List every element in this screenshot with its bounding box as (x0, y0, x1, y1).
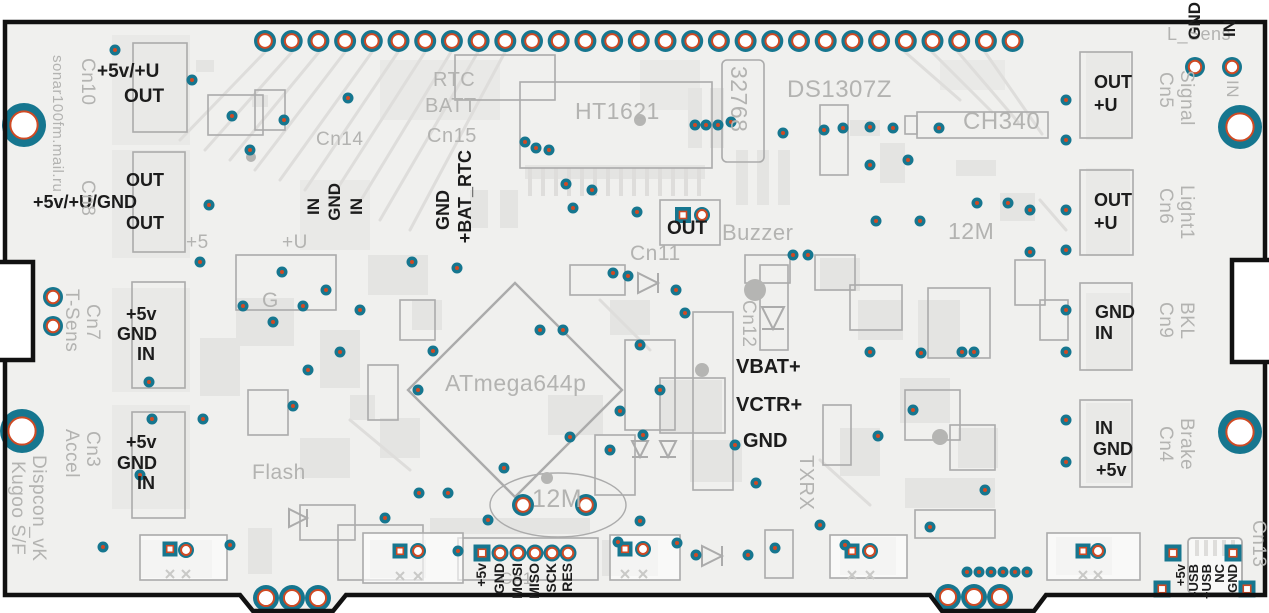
cn9-gnd-label: GND (1095, 303, 1135, 321)
gnd-center-label: GND (743, 431, 787, 451)
cn4-silk: Cn4 (1156, 426, 1175, 462)
board-name-silk: Dispcon_vK (29, 455, 48, 561)
cn9-silk: Cn9 (1156, 302, 1175, 338)
flash-silk: Flash (252, 462, 306, 483)
cn14-silk: Cn14 (316, 130, 363, 149)
cn4-gnd-label: GND (1093, 440, 1133, 458)
isp-mosi-label: MOSI (510, 563, 524, 599)
cn3-gnd-label: GND (117, 454, 157, 472)
cn3-in-label: IN (137, 474, 155, 492)
xtal-32768-silk: 32768 (727, 66, 750, 132)
cn7-silk: Cn7 (83, 304, 102, 340)
cn14-in1-label: IN (305, 198, 322, 215)
isp-res-label: RES (560, 563, 574, 592)
lsens-in-silk: IN (1224, 80, 1241, 98)
ch340-silk: CH340 (963, 110, 1040, 134)
cn14-in2-label: IN (348, 198, 365, 215)
cn7-5v-label: +5v (126, 305, 157, 323)
ht1621-silk: HT1621 (575, 100, 660, 123)
plusU-net-silk: +U (282, 233, 308, 252)
usb-gnd-label: GND (1226, 564, 1239, 593)
lsens-gnd-label: GND (1186, 2, 1203, 40)
cn10-silk: Cn10 (78, 58, 97, 105)
plus5-net-silk: +5 (186, 233, 209, 252)
isp-miso-label: MISO (527, 563, 541, 599)
cn3-5v-label: +5v (126, 433, 157, 451)
cn10-out-label: OUT (124, 87, 164, 106)
cn15-ref-silk: Cn15 (427, 126, 477, 146)
pcb-artwork (0, 0, 1269, 613)
xtal-12m-usb-silk: 12M (948, 220, 994, 243)
isp-gnd-label: GND (492, 563, 506, 594)
cn12-silk: Cn12 (739, 300, 758, 347)
cn15-batt-silk: BATT (425, 96, 477, 116)
xtal-12m-mcu-silk: 12M (532, 487, 582, 512)
cn7-gnd-label: GND (117, 325, 157, 343)
cn15-bat-label: +BAT_RTC (456, 150, 474, 243)
g-net-silk: G (262, 290, 279, 311)
cn4-5v-label: +5v (1096, 461, 1127, 479)
cn8-out-bottom-label: OUT (126, 214, 164, 232)
cn13-silk: Cn13 (1249, 520, 1268, 567)
isp-5v-label: +5v (474, 563, 488, 587)
cn8-out-top-label: OUT (126, 171, 164, 189)
board-variant-silk: Kugoo S/F (8, 461, 27, 555)
cn15-rtc-silk: RTC (433, 70, 475, 90)
pcb-layout-view: +5v/+U OUT OUT +5v/+U/GND OUT +5v GND IN… (0, 0, 1269, 613)
cn6-u-label: +U (1094, 214, 1118, 232)
cn11-silk: Cn11 (630, 243, 681, 264)
vctr-label: VCTR+ (736, 395, 802, 415)
cn14-gnd-label: GND (326, 183, 343, 221)
cn15-gnd-label: GND (434, 190, 452, 230)
cn4-in-label: IN (1095, 419, 1113, 437)
cn7-name-silk: T-Sens (62, 289, 81, 352)
isp-sck-label: SCK (544, 563, 558, 593)
cn7-in-label: IN (137, 345, 155, 363)
cn6-out-label: OUT (1094, 191, 1132, 209)
cn6-silk: Cn6 (1156, 188, 1175, 224)
cn3-name-silk: Accel (62, 429, 81, 478)
lsens-in-label: IN (1221, 20, 1238, 37)
buzzer-out-label: OUT (667, 219, 707, 238)
cn4-name-silk: Brake (1177, 418, 1196, 470)
ds1307z-silk: DS1307Z (787, 78, 892, 102)
cn5-silk: Cn5 (1156, 72, 1175, 108)
cn6-name-silk: Light1 (1177, 185, 1196, 240)
cn5-u-label: +U (1094, 96, 1118, 114)
cn10-rail-label: +5v/+U (97, 62, 159, 81)
txrx-silk: TXRX (796, 455, 816, 510)
cn5-name-silk: Signal (1177, 70, 1196, 126)
cn9-name-silk: BKL (1177, 302, 1196, 339)
author-silk: sonar100fm.mail.ru (50, 55, 65, 192)
mcu-silk: ATmega644p (445, 372, 586, 395)
cn9-in-label: IN (1095, 324, 1113, 342)
vbat-label: VBAT+ (736, 357, 801, 377)
cn3-silk: Cn3 (83, 431, 102, 467)
cn5-out-label: OUT (1094, 73, 1132, 91)
buzzer-silk: Buzzer (722, 222, 793, 244)
cn8-silk: Cn8 (78, 180, 97, 216)
